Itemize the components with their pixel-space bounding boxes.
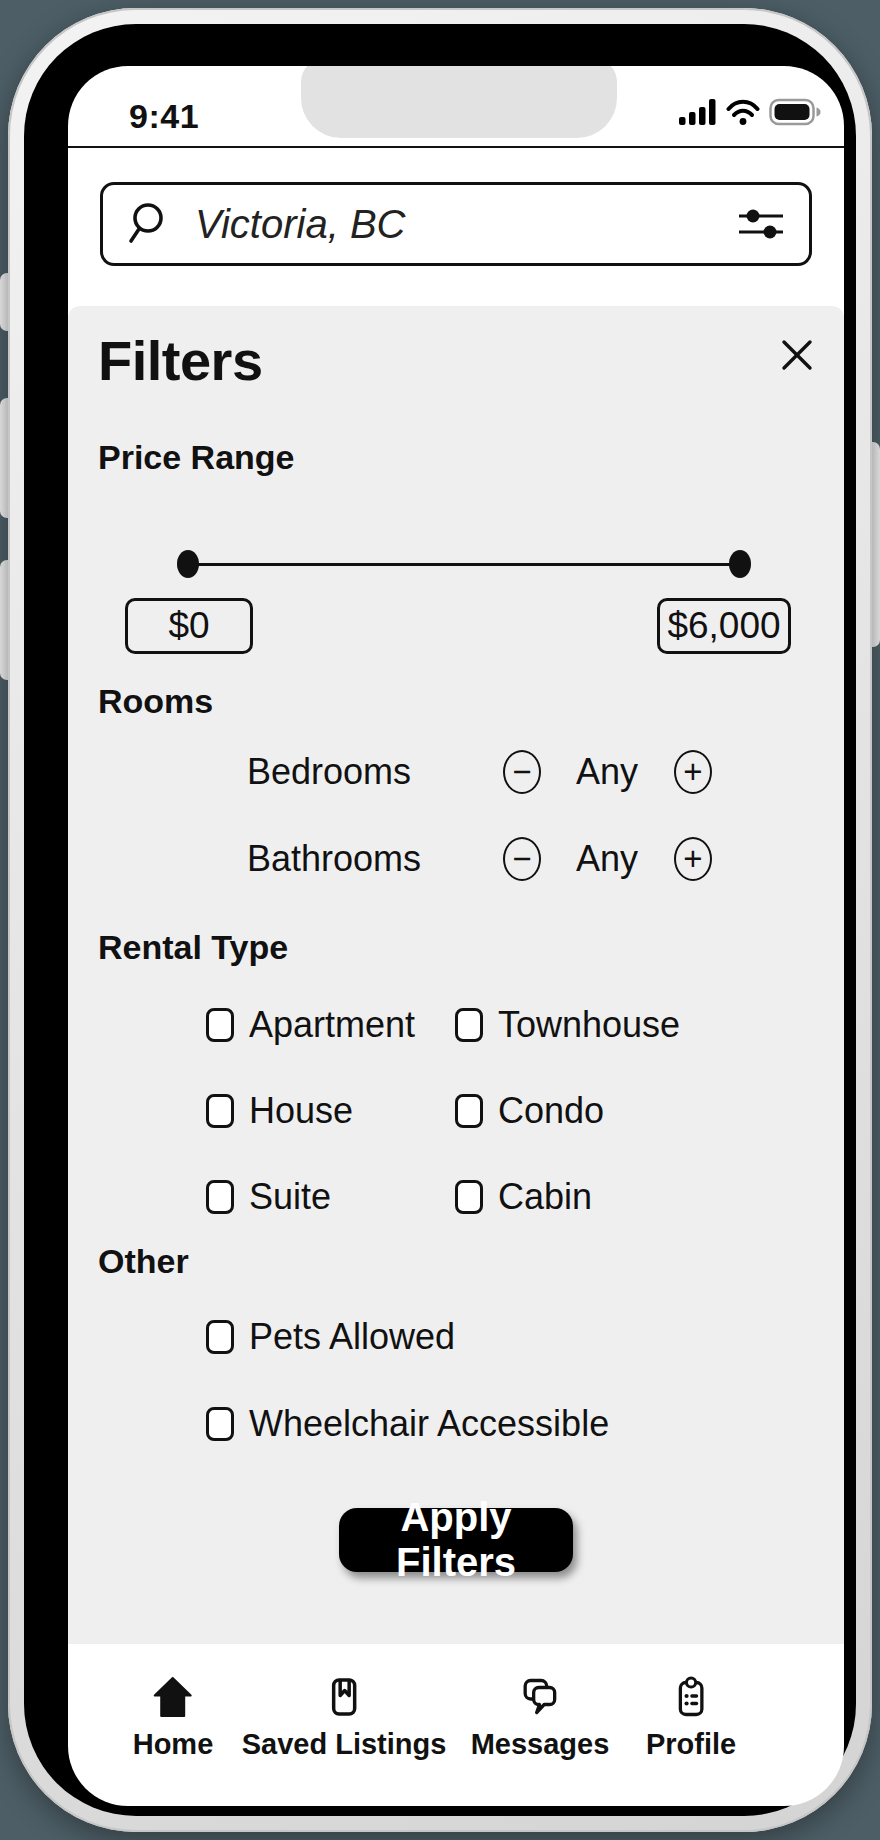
bedrooms-value: Any	[572, 748, 642, 796]
suite-checkbox[interactable]	[206, 1180, 234, 1214]
house-label: House	[249, 1090, 353, 1132]
checkbox-item-condo[interactable]: Condo	[455, 1092, 604, 1130]
close-icon	[778, 336, 816, 374]
checkbox-item-apartment[interactable]: Apartment	[206, 1006, 415, 1044]
checkbox-item-wheelchair-accessible[interactable]: Wheelchair Accessible	[206, 1405, 609, 1443]
price-slider-min-handle[interactable]	[177, 550, 199, 578]
status-icons	[679, 92, 822, 132]
price-slider-max-handle[interactable]	[729, 550, 751, 578]
status-time: 9:41	[129, 97, 199, 136]
nav-label-messages: Messages	[471, 1728, 610, 1761]
suite-label: Suite	[249, 1176, 331, 1218]
bathrooms-label: Bathrooms	[247, 835, 421, 883]
search-input[interactable]: Victoria, BC	[195, 202, 737, 247]
apartment-label: Apartment	[249, 1004, 415, 1046]
rooms-label: Rooms	[98, 682, 213, 721]
messages-icon	[517, 1674, 563, 1720]
bathrooms-row: Bathrooms − Any +	[68, 835, 844, 883]
phone-screen: 9:41	[68, 66, 844, 1806]
nav-label-saved-listings: Saved Listings	[242, 1728, 447, 1761]
nav-label-profile: Profile	[646, 1728, 736, 1761]
phone-bezel: 9:41	[24, 24, 856, 1816]
bedrooms-label: Bedrooms	[247, 748, 411, 796]
search-bar[interactable]: Victoria, BC	[100, 182, 812, 266]
condo-checkbox[interactable]	[455, 1094, 483, 1128]
bedrooms-increment-button[interactable]: +	[674, 750, 712, 794]
bathrooms-increment-button[interactable]: +	[674, 837, 712, 881]
price-min-box[interactable]: $0	[125, 598, 253, 654]
wheelchair-accessible-label: Wheelchair Accessible	[249, 1403, 609, 1445]
cellular-signal-icon	[679, 98, 717, 126]
other-label: Other	[98, 1242, 189, 1281]
house-checkbox[interactable]	[206, 1094, 234, 1128]
townhouse-checkbox[interactable]	[455, 1008, 483, 1042]
sliders-icon[interactable]	[737, 204, 785, 244]
wifi-icon	[726, 99, 760, 126]
apply-filters-button[interactable]: Apply Filters	[339, 1508, 573, 1572]
nav-item-profile[interactable]: Profile	[646, 1674, 736, 1761]
checkbox-item-townhouse[interactable]: Townhouse	[455, 1006, 680, 1044]
status-divider	[68, 146, 844, 148]
price-max-box[interactable]: $6,000	[657, 598, 791, 654]
nav-item-messages[interactable]: Messages	[471, 1674, 610, 1761]
checkbox-item-house[interactable]: House	[206, 1092, 353, 1130]
bathrooms-decrement-button[interactable]: −	[503, 837, 541, 881]
pets-allowed-label: Pets Allowed	[249, 1316, 455, 1358]
checkbox-item-suite[interactable]: Suite	[206, 1178, 331, 1216]
bedrooms-decrement-button[interactable]: −	[503, 750, 541, 794]
rental-type-label: Rental Type	[98, 928, 288, 967]
filters-title: Filters	[98, 328, 263, 393]
bedrooms-row: Bedrooms − Any +	[68, 748, 844, 796]
search-icon	[127, 201, 169, 247]
townhouse-label: Townhouse	[498, 1004, 680, 1046]
nav-item-home[interactable]: Home	[133, 1674, 214, 1761]
phone-mockup: { "status_bar": { "time": "9:41", "icons…	[0, 0, 880, 1840]
phone-frame: 9:41	[8, 8, 872, 1832]
nav-label-home: Home	[133, 1728, 214, 1761]
nav-item-saved-listings[interactable]: Saved Listings	[242, 1674, 447, 1761]
price-range-label: Price Range	[98, 438, 295, 477]
condo-label: Condo	[498, 1090, 604, 1132]
clipboard-icon	[668, 1674, 714, 1720]
checkbox-item-cabin[interactable]: Cabin	[455, 1178, 592, 1216]
wheelchair-accessible-checkbox[interactable]	[206, 1407, 234, 1441]
bookmark-icon	[321, 1674, 367, 1720]
cabin-checkbox[interactable]	[455, 1180, 483, 1214]
bathrooms-value: Any	[572, 835, 642, 883]
cabin-label: Cabin	[498, 1176, 592, 1218]
home-icon	[150, 1674, 196, 1720]
checkbox-item-pets-allowed[interactable]: Pets Allowed	[206, 1318, 455, 1356]
apartment-checkbox[interactable]	[206, 1008, 234, 1042]
pets-allowed-checkbox[interactable]	[206, 1320, 234, 1354]
price-slider-track[interactable]	[188, 563, 740, 566]
close-button[interactable]	[778, 336, 816, 374]
notch	[301, 66, 617, 138]
battery-icon	[769, 98, 822, 126]
